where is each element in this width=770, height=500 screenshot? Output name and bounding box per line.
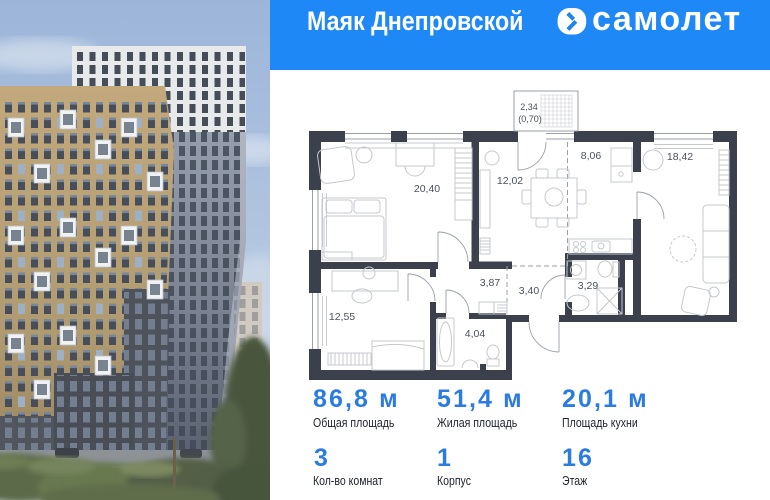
svg-text:2,34: 2,34 [520, 102, 538, 112]
svg-text:20,40: 20,40 [414, 183, 440, 195]
svg-text:(0,70): (0,70) [518, 114, 542, 124]
svg-text:3,40: 3,40 [519, 285, 540, 297]
svg-text:8,06: 8,06 [581, 150, 602, 162]
svg-text:12,55: 12,55 [329, 311, 355, 323]
svg-text:3,87: 3,87 [480, 277, 501, 289]
svg-text:12,02: 12,02 [497, 175, 523, 187]
svg-text:18,42: 18,42 [667, 151, 693, 163]
svg-text:3,29: 3,29 [578, 280, 599, 292]
svg-text:4,04: 4,04 [465, 328, 486, 340]
